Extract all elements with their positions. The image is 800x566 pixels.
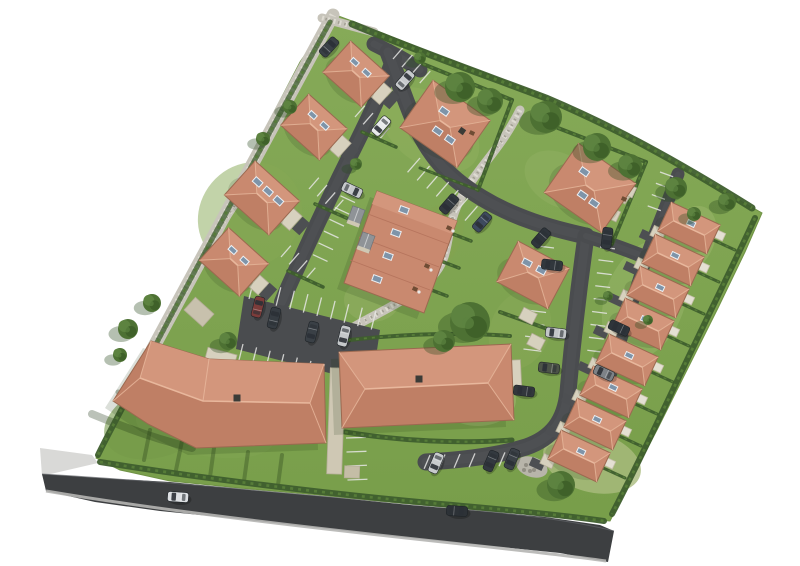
chimney bbox=[234, 395, 241, 402]
tree bbox=[414, 52, 426, 64]
rock bbox=[522, 468, 526, 472]
parked-car bbox=[541, 259, 563, 271]
parked-car bbox=[601, 227, 613, 249]
stall-line bbox=[347, 479, 367, 480]
tree bbox=[477, 88, 503, 114]
parked-car bbox=[545, 327, 567, 339]
garden-chair bbox=[451, 229, 454, 232]
tree bbox=[643, 315, 653, 325]
parked-car bbox=[446, 505, 468, 516]
site-plan-rendering bbox=[0, 0, 800, 566]
tree bbox=[603, 291, 613, 301]
site-plan-stage bbox=[0, 0, 800, 566]
tree bbox=[450, 302, 490, 342]
large-building-center bbox=[339, 344, 514, 428]
tree bbox=[618, 154, 642, 178]
tree bbox=[143, 294, 161, 312]
tree bbox=[219, 332, 237, 350]
rock bbox=[528, 469, 532, 473]
tree bbox=[530, 101, 562, 133]
tree bbox=[113, 348, 127, 362]
tree bbox=[433, 330, 455, 352]
stall-line bbox=[346, 437, 366, 438]
stall-line bbox=[346, 451, 366, 452]
tree bbox=[687, 207, 701, 221]
tree bbox=[445, 72, 475, 102]
tree bbox=[583, 133, 611, 161]
garden-chair bbox=[417, 290, 420, 293]
chimney bbox=[416, 376, 423, 383]
parked-car bbox=[167, 491, 189, 502]
rock bbox=[532, 468, 536, 472]
tree bbox=[256, 132, 270, 146]
tree bbox=[547, 471, 575, 499]
tree bbox=[118, 319, 138, 339]
tree bbox=[665, 177, 687, 199]
tree bbox=[350, 158, 362, 170]
tree bbox=[283, 100, 297, 114]
parked-car bbox=[513, 385, 535, 397]
tree bbox=[718, 193, 736, 211]
rock bbox=[524, 463, 528, 467]
garden-chair bbox=[429, 268, 432, 271]
garage-roof bbox=[344, 466, 359, 479]
parked-car bbox=[538, 362, 560, 374]
